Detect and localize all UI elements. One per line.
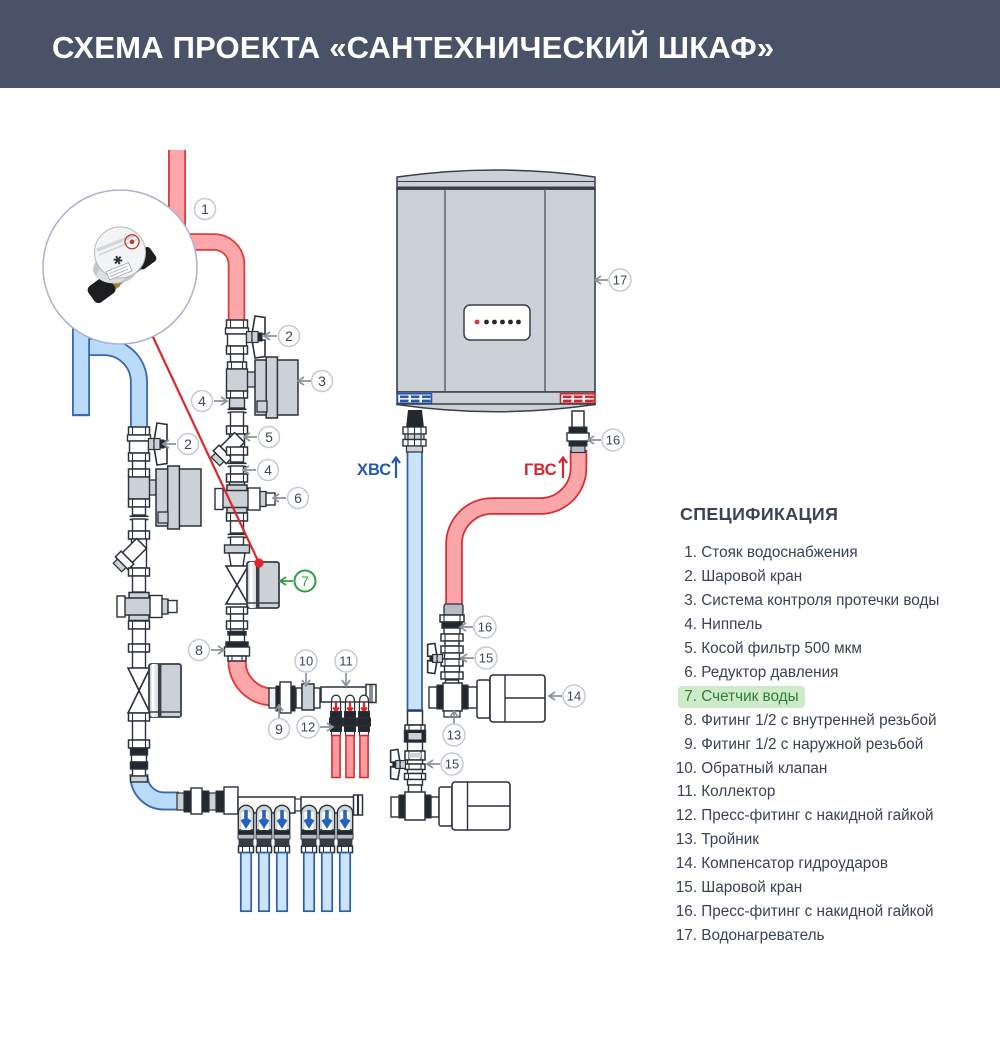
svg-text:17: 17 — [613, 273, 627, 288]
svg-text:3: 3 — [318, 373, 326, 389]
svg-text:6: 6 — [294, 490, 302, 506]
svg-text:11: 11 — [339, 654, 353, 669]
svg-text:9: 9 — [275, 721, 283, 737]
svg-text:4: 4 — [264, 462, 272, 478]
svg-text:15: 15 — [445, 757, 459, 772]
svg-text:16: 16 — [478, 620, 492, 635]
svg-text:8: 8 — [195, 642, 203, 658]
svg-text:14: 14 — [567, 689, 581, 704]
svg-text:4: 4 — [198, 393, 206, 409]
svg-text:10: 10 — [299, 654, 313, 669]
svg-text:2: 2 — [285, 328, 293, 344]
svg-text:15: 15 — [479, 651, 493, 666]
svg-text:13: 13 — [447, 728, 461, 743]
svg-text:ГВС: ГВС — [524, 461, 557, 479]
svg-text:1: 1 — [201, 201, 209, 217]
svg-text:7: 7 — [301, 573, 309, 589]
svg-text:16: 16 — [606, 433, 620, 448]
svg-text:2: 2 — [184, 436, 192, 452]
svg-text:5: 5 — [265, 429, 273, 445]
svg-text:12: 12 — [301, 720, 315, 735]
svg-text:ХВС: ХВС — [357, 461, 391, 479]
